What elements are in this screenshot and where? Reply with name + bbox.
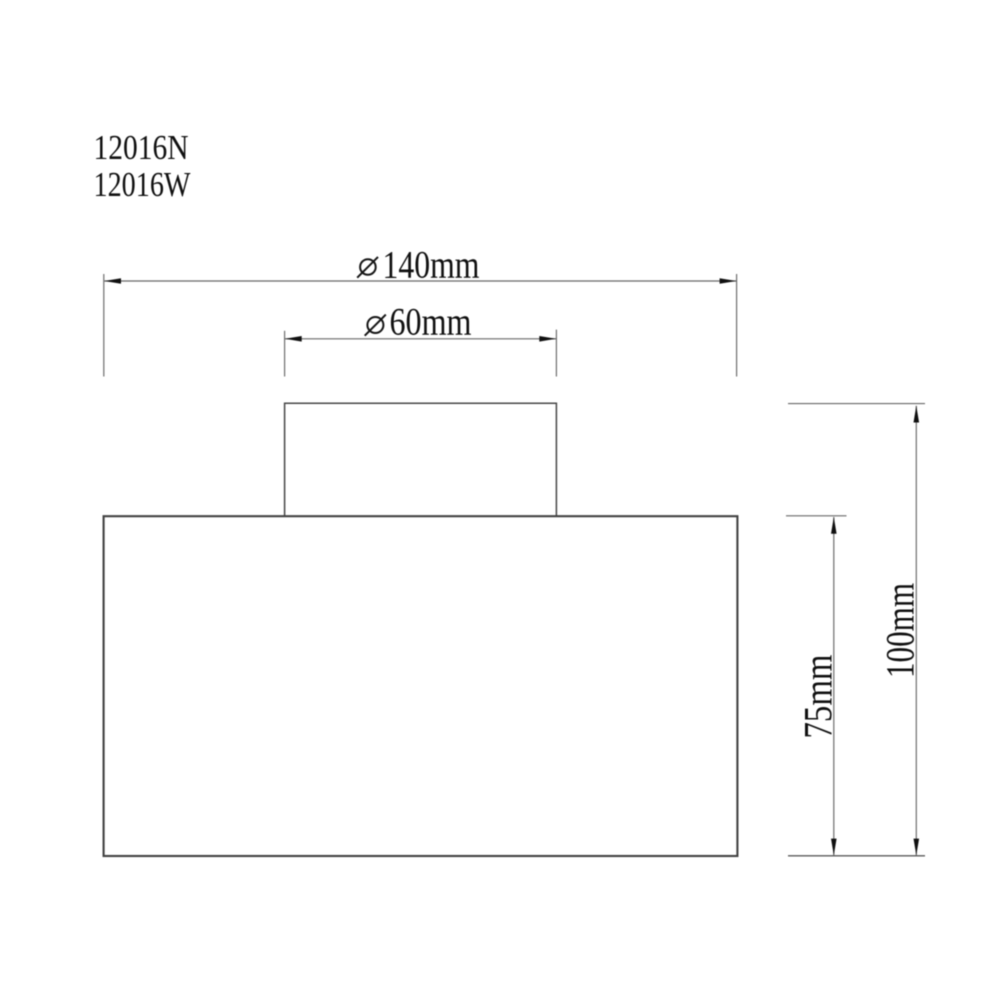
svg-text:12016W: 12016W (94, 165, 191, 204)
svg-text:75mm: 75mm (796, 655, 841, 739)
svg-text:100mm: 100mm (878, 583, 923, 678)
svg-text:60mm: 60mm (390, 300, 472, 344)
svg-text:140mm: 140mm (383, 243, 480, 287)
svg-text:12016N: 12016N (94, 128, 189, 167)
